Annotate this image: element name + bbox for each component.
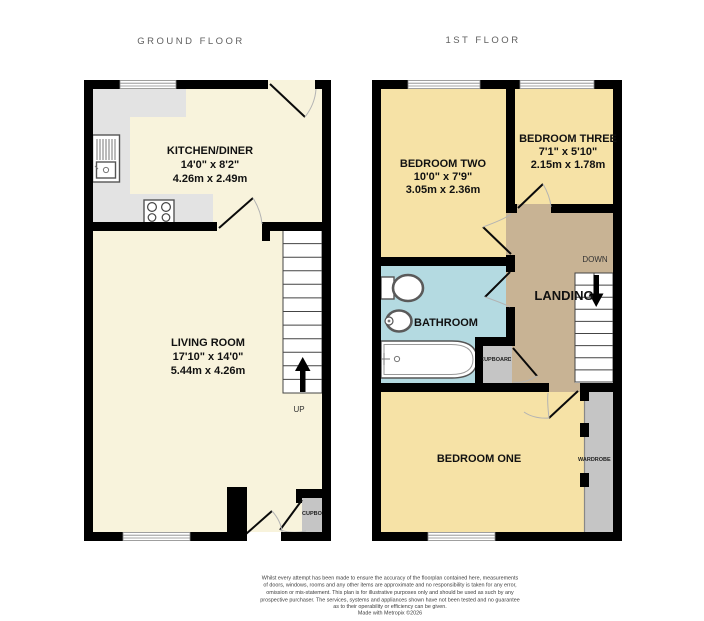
hob-icon (144, 200, 174, 224)
kitchen-dims-metric: 4.26m x 2.49m (173, 173, 248, 185)
down-label: DOWN (582, 255, 608, 264)
first-floor-title: 1ST FLOOR (445, 35, 520, 46)
kitchen-name: KITCHEN/DINER (167, 145, 253, 157)
living-room-window (123, 533, 190, 541)
disclaimer-line: of doors, windows, rooms and any other i… (263, 583, 517, 589)
disclaimer-line: as to their operability or efficiency ca… (333, 604, 446, 610)
kitchen-window (120, 81, 176, 89)
living-name: LIVING ROOM (171, 337, 245, 349)
disclaimer-line: Whilst every attempt has been made to en… (262, 575, 519, 581)
bedroom-three-name: BEDROOM THREE (519, 133, 617, 145)
bathroom-label: BATHROOM (414, 317, 478, 329)
entry-wall-stub (227, 487, 247, 532)
footer-disclaimer: Whilst every attempt has been made to en… (260, 575, 519, 616)
bedroom-two-window (408, 81, 480, 89)
first-floor-plan: 1ST FLOOR (372, 35, 622, 541)
ground-floor-plan: GROUND FLOOR (84, 36, 334, 541)
floorplan-canvas: GROUND FLOOR (0, 0, 704, 621)
bedroom-three-dims-metric: 2.15m x 1.78m (531, 159, 606, 171)
living-dims-imperial: 17'10" x 14'0" (173, 351, 244, 363)
bedroom-one-label: BEDROOM ONE (437, 453, 521, 465)
bedroom-one-door-gap (549, 383, 580, 392)
disclaimer-line: omission or mis-statement. This plan is … (266, 590, 514, 596)
first-cupboard-label: CUPBOARD (480, 357, 512, 363)
sink-icon (93, 135, 120, 182)
bathroom-sink-icon (385, 311, 412, 332)
living-dims-metric: 5.44m x 4.26m (171, 365, 246, 377)
bedroom-two-name: BEDROOM TWO (400, 158, 487, 170)
up-label: UP (293, 405, 304, 414)
bedroom-three-window (520, 81, 594, 89)
metropix-credit: Made with Metropix ©2026 (358, 609, 422, 616)
ground-floor-title: GROUND FLOOR (137, 36, 245, 47)
living-room-label: LIVING ROOM 17'10" x 14'0" 5.44m x 4.26m (171, 337, 246, 377)
disclaimer-line: prospective purchaser. The services, sys… (260, 597, 519, 603)
bedroom-two-dims-imperial: 10'0" x 7'9" (414, 171, 472, 183)
stairs-up (283, 230, 322, 393)
bathtub-icon (380, 341, 477, 378)
kitchen-dims-imperial: 14'0" x 8'2" (181, 159, 239, 171)
toilet-icon (381, 275, 423, 301)
wardrobe-label: WARDROBE (578, 457, 611, 463)
bedroom-three-dims-imperial: 7'1" x 5'10" (539, 146, 597, 158)
landing-label: LANDING (534, 288, 593, 303)
bedroom-one-window (428, 533, 495, 541)
bedroom-two-dims-metric: 3.05m x 2.36m (406, 184, 481, 196)
